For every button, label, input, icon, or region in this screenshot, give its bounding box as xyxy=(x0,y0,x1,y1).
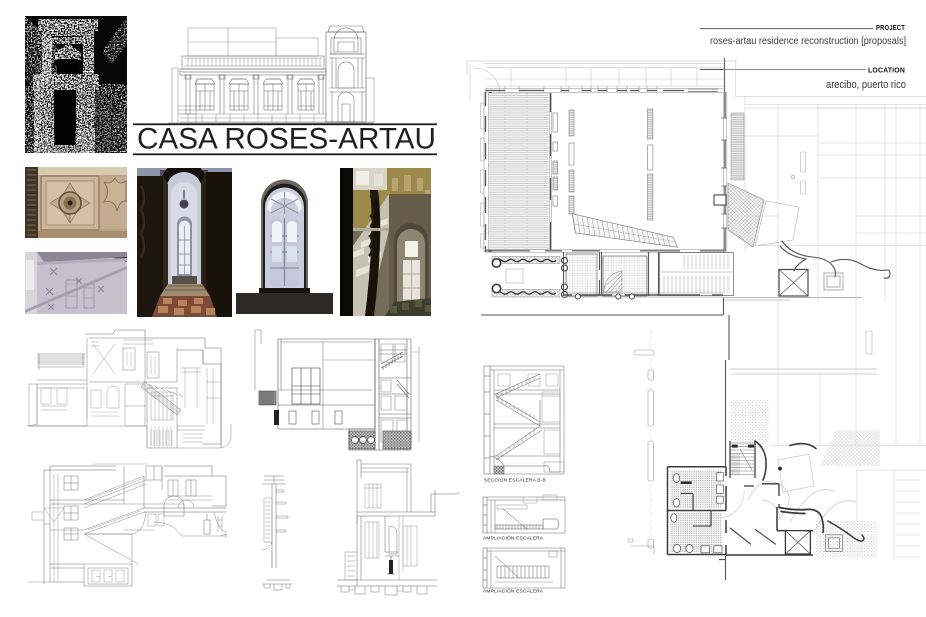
svg-text:PROJECT: PROJECT xyxy=(876,23,905,32)
svg-text:roses-artau residence reconstr: roses-artau residence reconstruction [pr… xyxy=(710,36,906,47)
svg-text:AMPLIACIÓN ESCALERA: AMPLIACIÓN ESCALERA xyxy=(483,535,544,542)
svg-text:LOCATION: LOCATION xyxy=(868,66,905,75)
svg-text:AMPLIACIÓN ESCALERA: AMPLIACIÓN ESCALERA xyxy=(483,588,544,595)
svg-text:arecibo, puerto rico: arecibo, puerto rico xyxy=(826,79,906,91)
svg-text:CASA ROSES-ARTAU: CASA ROSES-ARTAU xyxy=(137,123,436,156)
svg-text:SECCIÓN ESCALERA B-B: SECCIÓN ESCALERA B-B xyxy=(484,477,546,484)
